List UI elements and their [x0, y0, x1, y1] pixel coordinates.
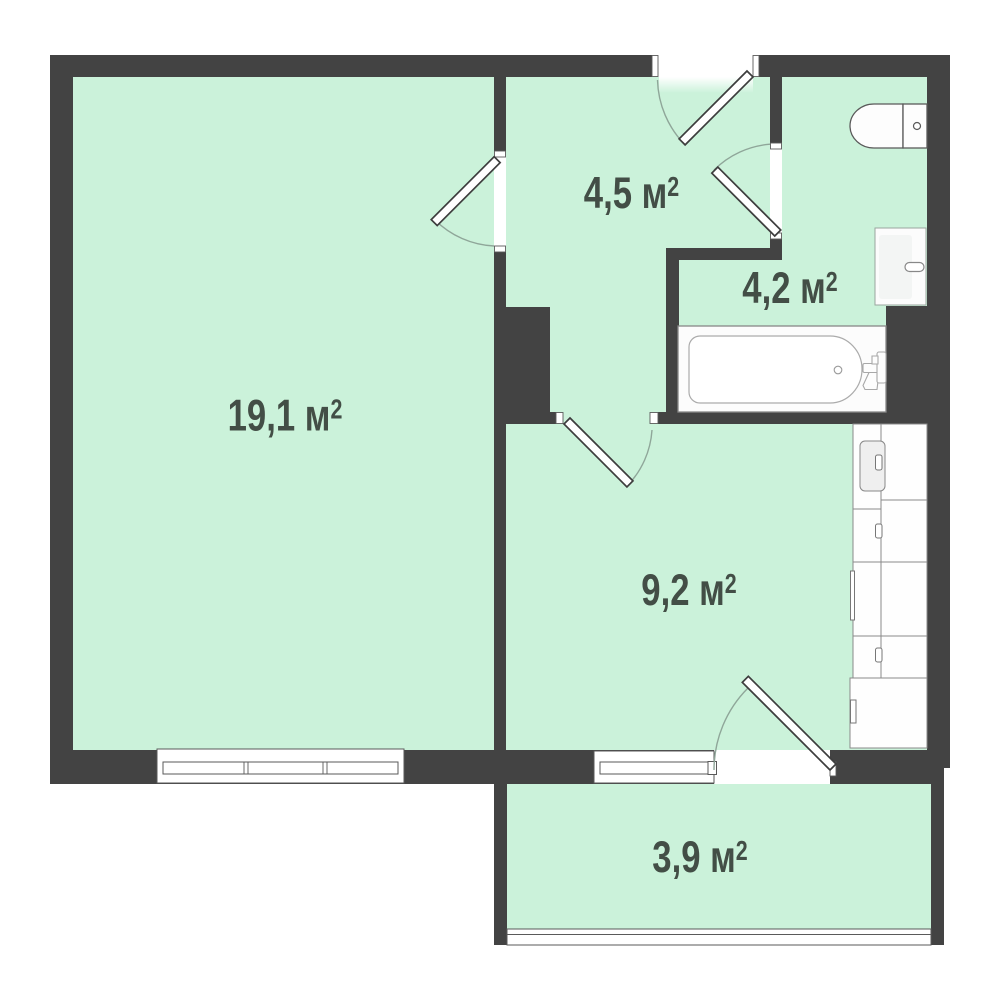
svg-text:4,5 м2: 4,5 м2	[584, 169, 679, 218]
svg-text:3,9 м2: 3,9 м2	[652, 833, 747, 882]
svg-text:19,1 м2: 19,1 м2	[228, 391, 343, 440]
svg-text:4,2 м2: 4,2 м2	[742, 264, 837, 313]
svg-text:9,2 м2: 9,2 м2	[641, 566, 736, 615]
